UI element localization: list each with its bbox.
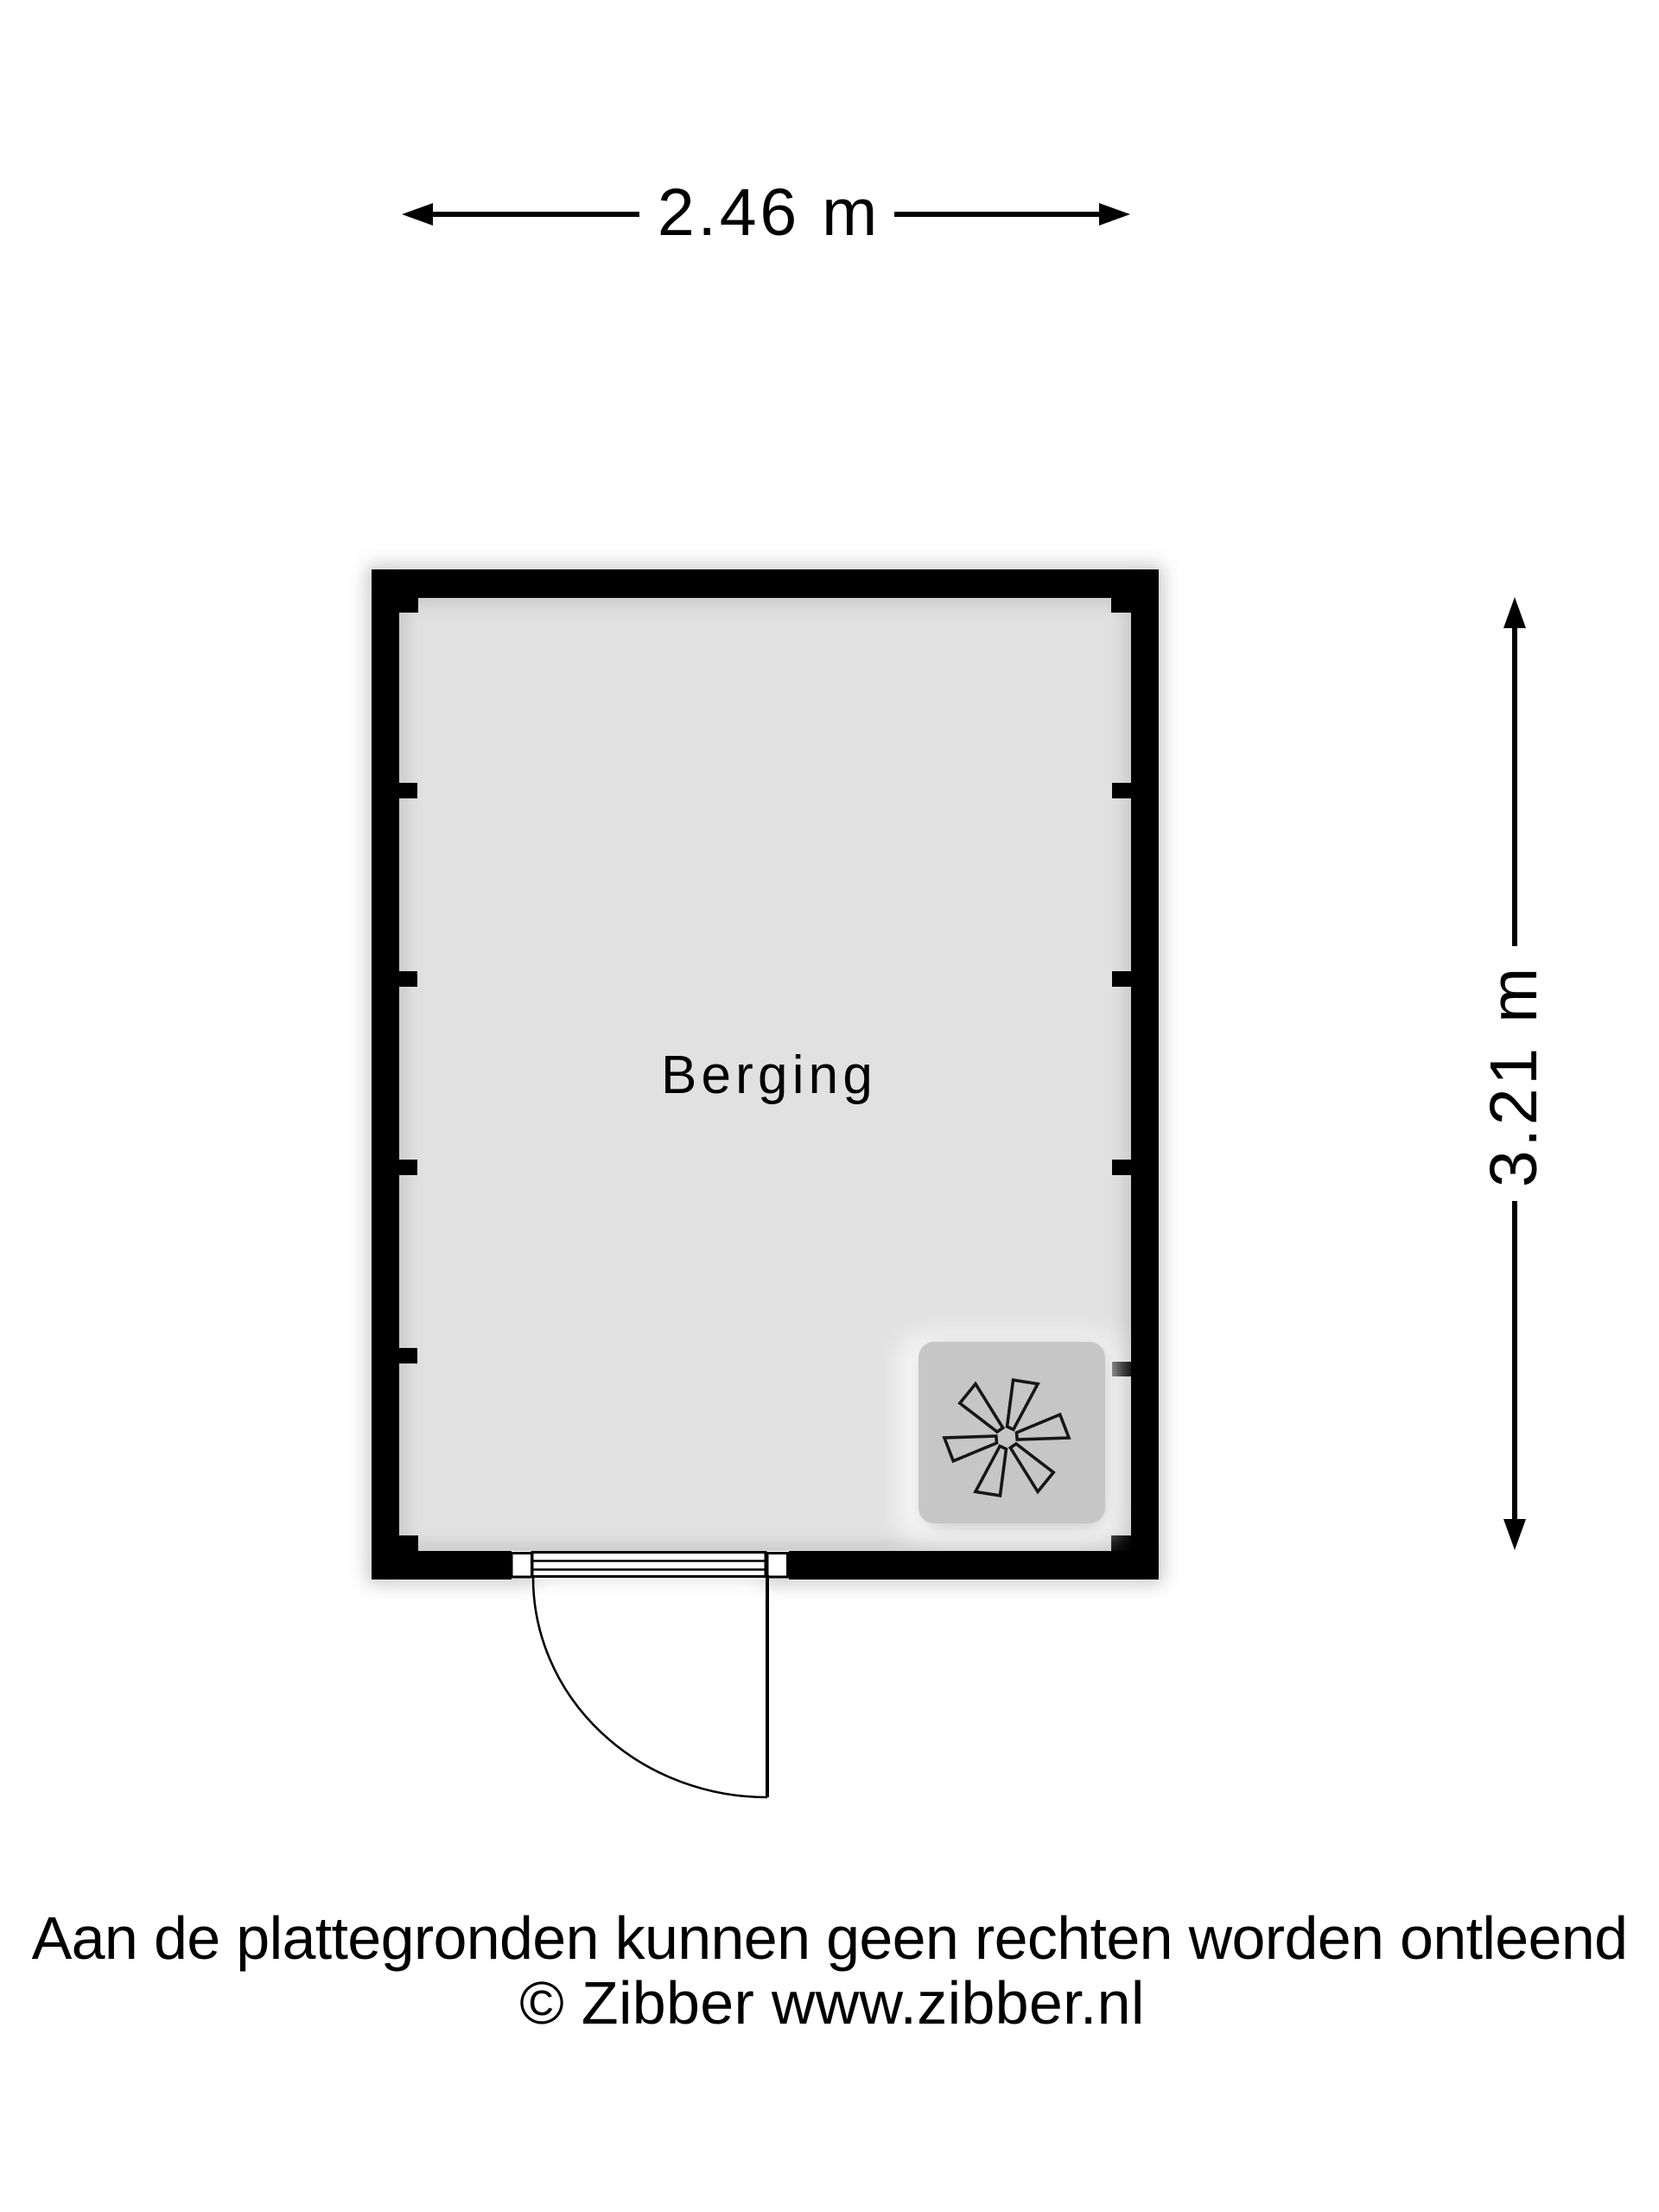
svg-text:Aan de plattegronden kunnen ge: Aan de plattegronden kunnen geen rechten… (32, 1904, 1628, 1972)
svg-text:© Zibber www.zibber.nl: © Zibber www.zibber.nl (519, 1969, 1144, 2037)
svg-text:2.46 m: 2.46 m (658, 175, 880, 250)
svg-text:Berging: Berging (661, 1046, 877, 1105)
svg-text:3.21 m: 3.21 m (1477, 964, 1551, 1187)
